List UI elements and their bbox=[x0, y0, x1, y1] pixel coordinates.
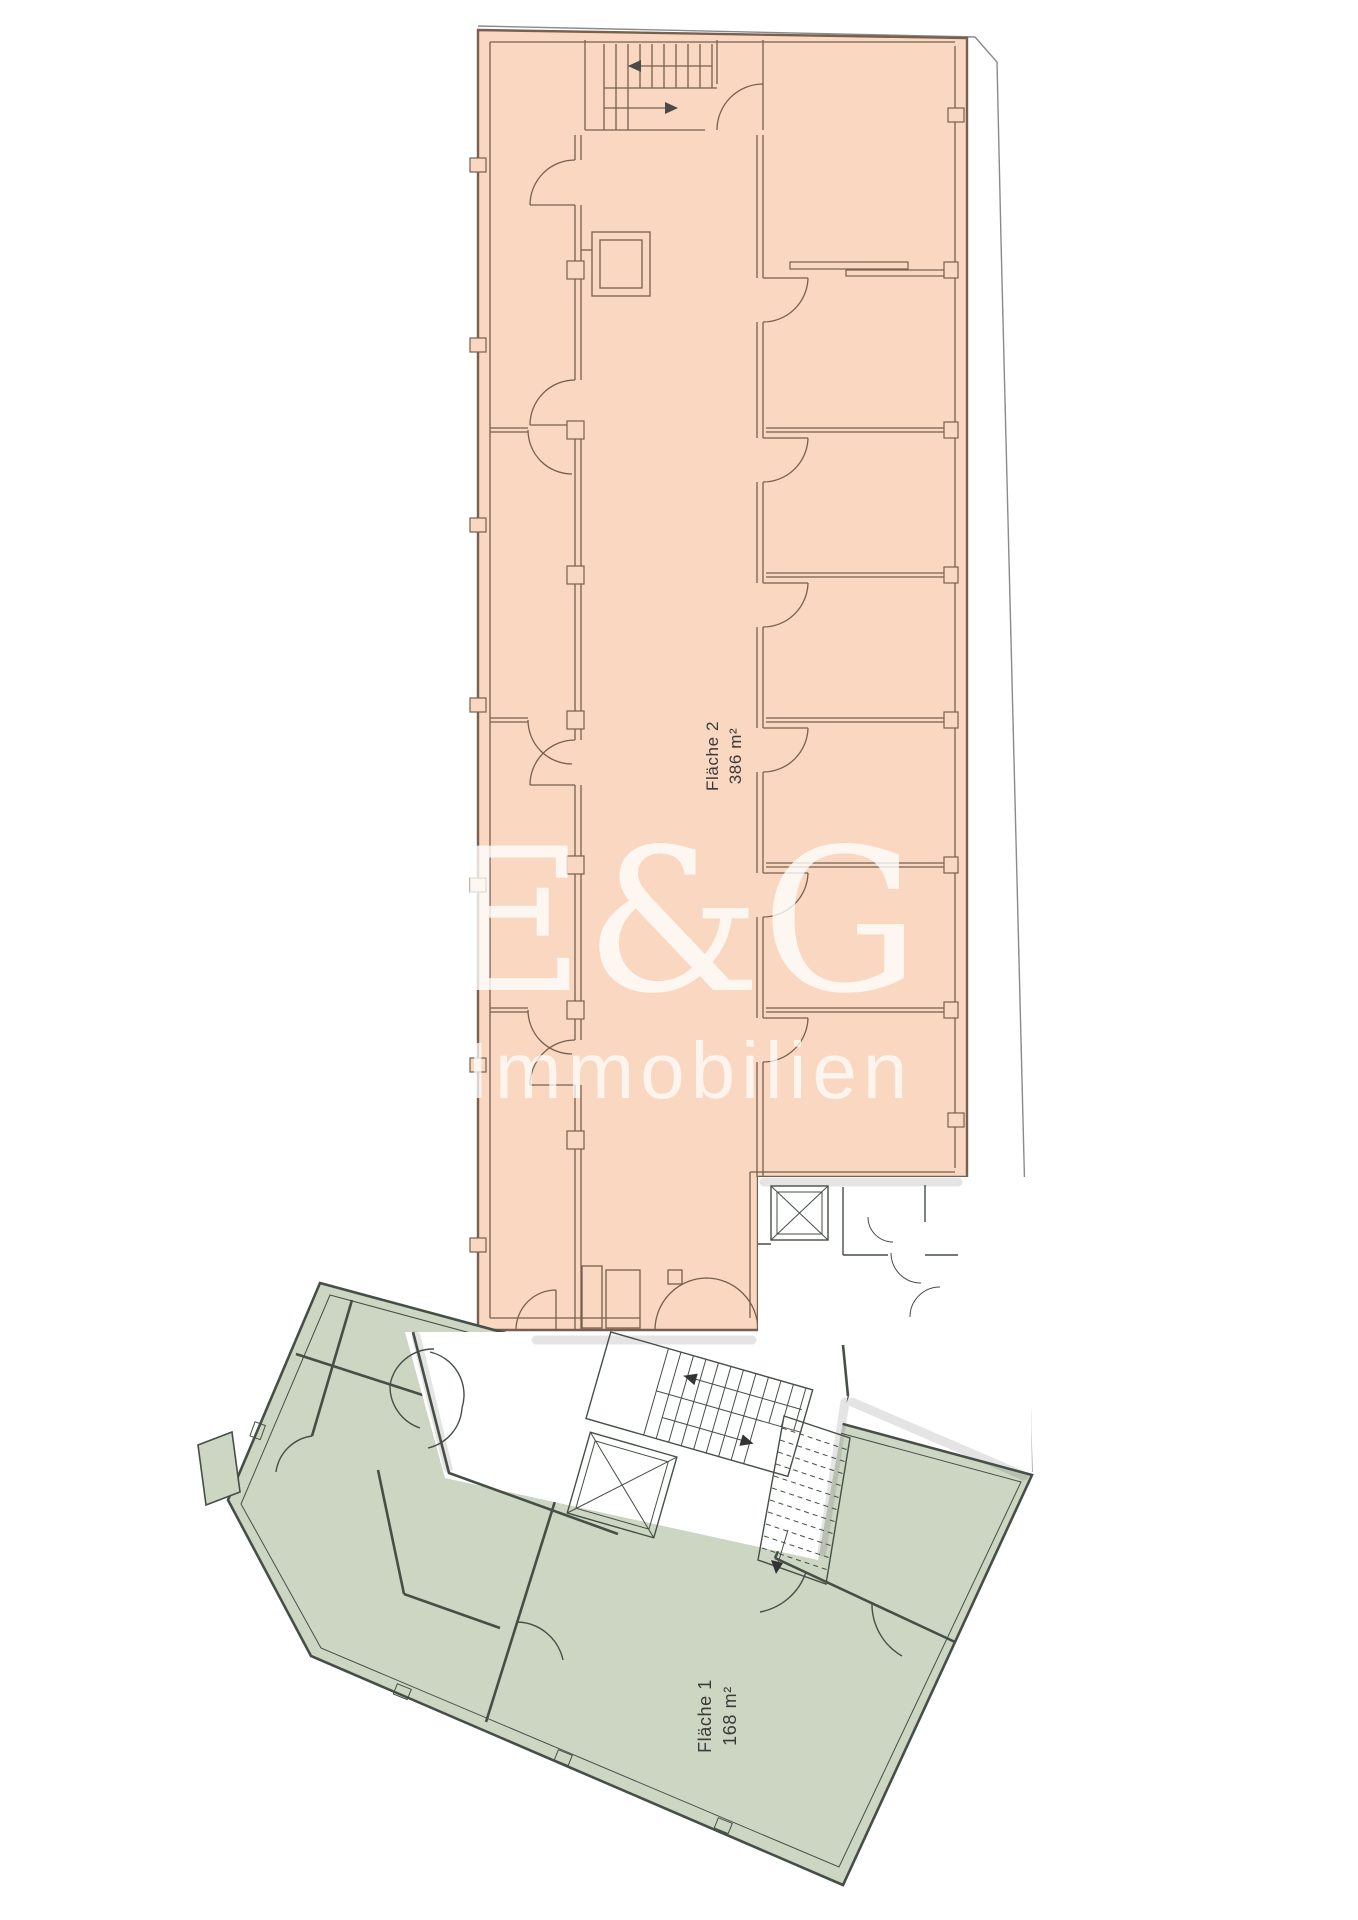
balcony-bump bbox=[198, 1432, 240, 1505]
flaeche-2-label: Fläche 2 bbox=[703, 721, 722, 791]
sliding-partition bbox=[790, 262, 908, 269]
watermark: E&G Immobilien bbox=[441, 806, 920, 1115]
flaeche-1-size: 168 m² bbox=[720, 1686, 740, 1746]
floor-plan-svg: Fläche 2 386 m² Fläche 1 168 m² E&G Immo… bbox=[0, 0, 1358, 1920]
flaeche-2-size: 386 m² bbox=[726, 728, 745, 785]
flaeche-1-label: Fläche 1 bbox=[695, 1679, 715, 1753]
watermark-brand-text: E&G bbox=[441, 806, 920, 1037]
floor-plan-page: Fläche 2 386 m² Fläche 1 168 m² E&G Immo… bbox=[0, 0, 1358, 1920]
sliding-partition-leaf bbox=[846, 270, 955, 276]
flaeche-2-fill bbox=[478, 30, 967, 1330]
watermark-subtitle-text: Immobilien bbox=[467, 1026, 914, 1115]
area-flaeche-2-region bbox=[470, 30, 967, 1330]
